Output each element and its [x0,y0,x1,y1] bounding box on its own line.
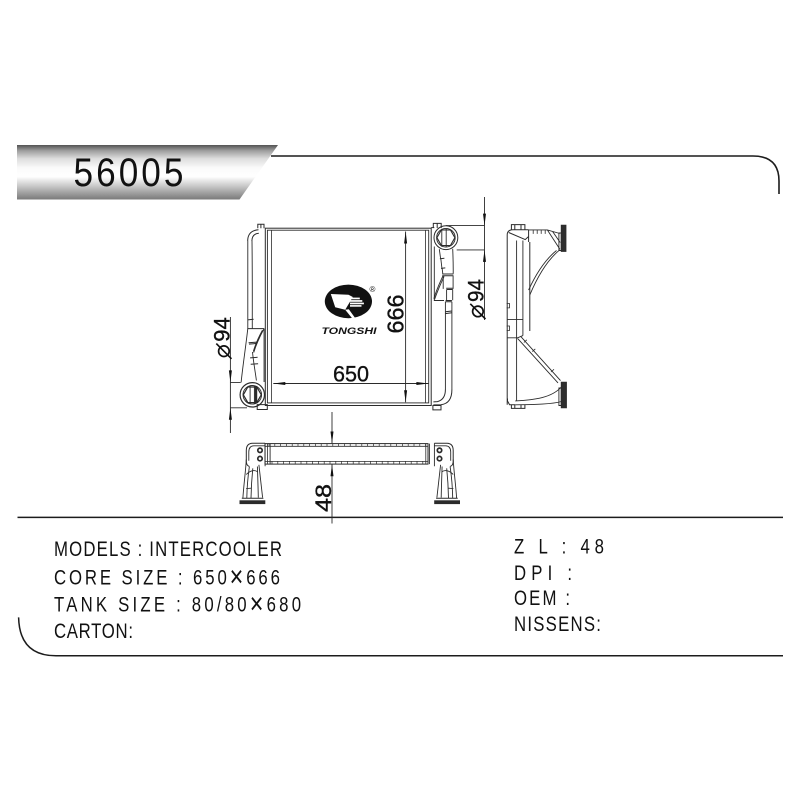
svg-text:DPI :: DPI : [514,562,572,585]
svg-text:CORE SIZE : 650×666: CORE SIZE : 650×666 [54,560,280,593]
svg-text:®: ® [370,285,376,294]
svg-text:Z L : 48: Z L : 48 [514,536,604,559]
svg-text:94: 94 [464,279,489,302]
svg-text:650: 650 [333,362,369,387]
svg-text:666: 666 [383,295,409,334]
svg-text:CARTON:: CARTON: [54,620,133,643]
svg-text:48: 48 [311,484,336,512]
svg-text:NISSENS:: NISSENS: [514,613,601,636]
svg-text:56005: 56005 [74,150,184,195]
svg-text:TANK SIZE : 80/80×680: TANK SIZE : 80/80×680 [54,587,301,620]
svg-text:TONGSHI: TONGSHI [322,326,377,337]
svg-text:94: 94 [210,317,235,342]
svg-text:OEM :: OEM : [514,587,570,610]
svg-text:MODELS : INTERCOOLER: MODELS : INTERCOOLER [54,538,282,561]
